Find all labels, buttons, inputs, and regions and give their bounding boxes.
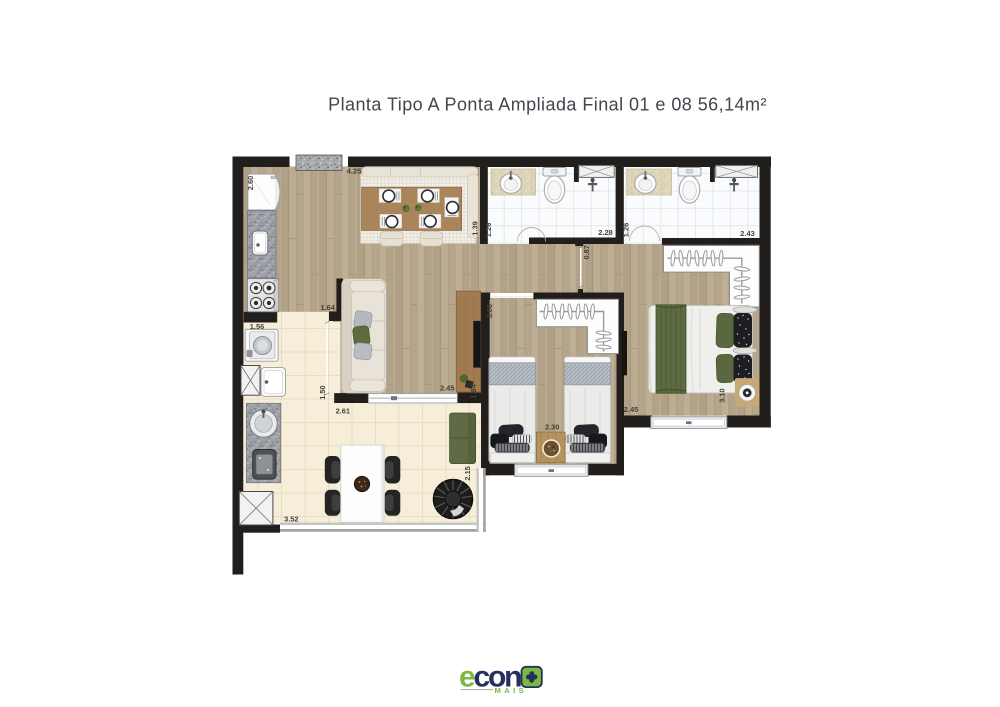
svg-text:2.30: 2.30 xyxy=(545,423,559,432)
svg-text:2.61: 2.61 xyxy=(336,406,350,415)
svg-text:0.87: 0.87 xyxy=(582,245,591,259)
svg-text:2.60: 2.60 xyxy=(246,176,255,190)
svg-text:1.26: 1.26 xyxy=(622,223,631,237)
svg-text:4.25: 4.25 xyxy=(347,166,361,175)
svg-text:MAIS: MAIS xyxy=(495,686,528,695)
svg-text:2.45: 2.45 xyxy=(440,384,454,393)
svg-text:3.52: 3.52 xyxy=(284,515,298,524)
svg-text:1.56: 1.56 xyxy=(250,322,264,331)
svg-text:3.00: 3.00 xyxy=(485,304,494,318)
svg-text:1.84: 1.84 xyxy=(469,383,478,398)
svg-text:2.15: 2.15 xyxy=(463,466,472,480)
svg-text:1.26: 1.26 xyxy=(484,223,493,237)
svg-text:2.43: 2.43 xyxy=(740,229,754,238)
svg-text:2.28: 2.28 xyxy=(598,228,612,237)
svg-text:3.10: 3.10 xyxy=(718,388,727,402)
svg-text:2.45: 2.45 xyxy=(624,405,638,414)
svg-text:Planta Tipo A Ponta Ampliada F: Planta Tipo A Ponta Ampliada Final 01 e … xyxy=(328,95,767,115)
svg-text:1.50: 1.50 xyxy=(318,385,327,399)
svg-text:1.64: 1.64 xyxy=(321,303,336,312)
svg-text:1.39: 1.39 xyxy=(470,221,479,235)
